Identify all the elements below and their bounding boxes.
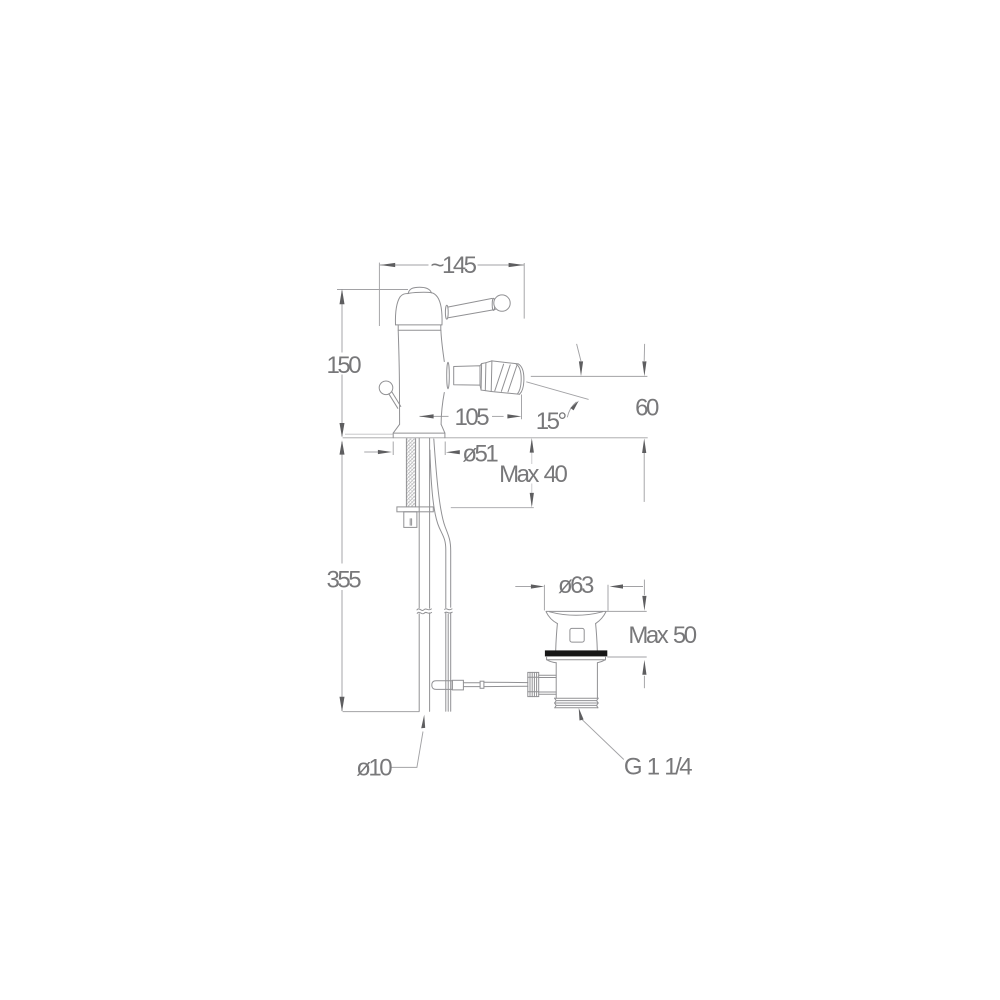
- svg-text:Max 40: Max 40: [499, 461, 567, 488]
- svg-text:G 1 1/4: G 1 1/4: [624, 753, 692, 780]
- svg-text:15°: 15°: [536, 408, 567, 435]
- svg-text:Max 50: Max 50: [628, 622, 696, 649]
- svg-text:~145: ~145: [430, 252, 476, 279]
- svg-text:355: 355: [327, 566, 362, 593]
- svg-text:ø63: ø63: [558, 572, 594, 599]
- svg-text:150: 150: [327, 352, 362, 379]
- svg-text:60: 60: [635, 395, 659, 422]
- svg-text:ø51: ø51: [462, 441, 498, 468]
- svg-text:105: 105: [455, 404, 490, 431]
- svg-text:ø10: ø10: [356, 755, 392, 782]
